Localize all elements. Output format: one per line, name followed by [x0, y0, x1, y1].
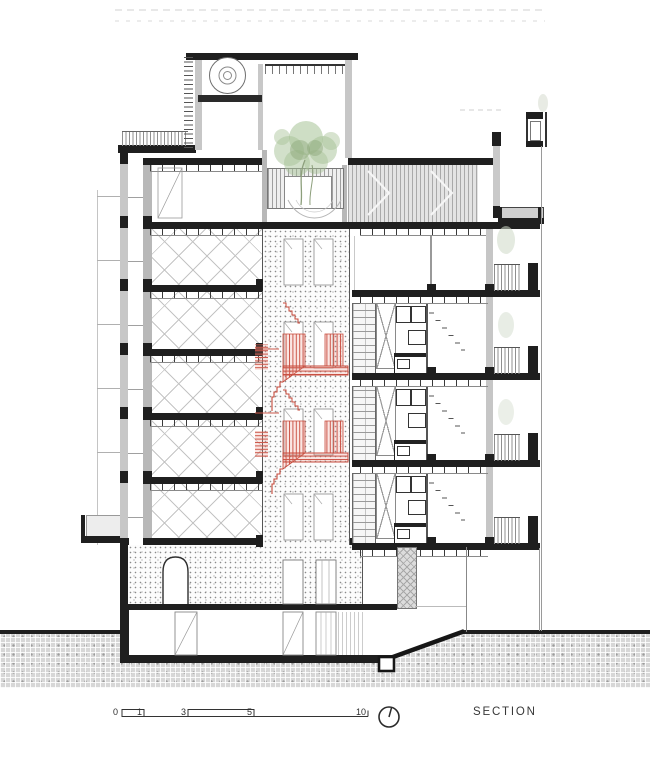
kitchen-wall [426, 386, 428, 460]
ground-floor-slab [128, 604, 397, 610]
column-cut [120, 407, 128, 419]
kitchen-sink [397, 359, 410, 369]
closet [376, 386, 396, 456]
joist-band [360, 229, 488, 236]
room-lattice [152, 420, 262, 477]
planter-box [284, 176, 332, 209]
balcony-plant [498, 399, 514, 425]
party-wall-brick [352, 386, 376, 462]
kitchen-cabinet [411, 476, 426, 493]
entry-canopy [86, 515, 122, 538]
roof-railing [122, 131, 188, 146]
closet [376, 303, 396, 369]
grade-line-left [0, 630, 122, 634]
kitchen-appliance [408, 330, 426, 345]
roof-vent-cap [526, 112, 543, 119]
stair-core-concrete [262, 229, 350, 545]
floor-slab [352, 460, 540, 467]
column-cut [120, 471, 128, 483]
column-cut [120, 279, 128, 291]
kitchen-cabinet [396, 476, 411, 493]
partition-wall [430, 236, 432, 290]
joist-band [150, 165, 262, 172]
footing-line [415, 606, 466, 607]
kitchen-appliance [408, 500, 426, 515]
floor-slab [143, 222, 540, 229]
floor-slab [352, 290, 540, 297]
column-cut [120, 152, 128, 164]
bulkhead-partition [258, 64, 263, 150]
column-cut [120, 343, 128, 355]
joist-band [360, 297, 488, 304]
joist-band [360, 550, 488, 557]
floor-slab [352, 543, 540, 550]
kitchen-cabinet [411, 306, 426, 323]
kitchen-sink [397, 529, 410, 539]
joist-band [150, 420, 262, 427]
joist-band [150, 484, 262, 491]
scale-label-0: 0 [102, 707, 118, 717]
room-door [158, 168, 182, 218]
floor-slab [143, 285, 267, 292]
awning-line [97, 196, 120, 197]
kitchen-cabinet [396, 389, 411, 406]
floor-slab [143, 413, 267, 420]
kitchen-cabinet [411, 389, 426, 406]
awning-line [97, 452, 120, 453]
neighbor-boundary-line [97, 190, 98, 545]
kitchen-appliance [408, 413, 426, 428]
undercroft-edge-line [539, 548, 540, 631]
awning-line [97, 324, 120, 325]
awning-line [97, 260, 120, 261]
column-cut [427, 537, 436, 549]
balcony-jamb [528, 516, 538, 543]
bulkhead-roof-slab [186, 53, 358, 60]
scale-label-3: 3 [170, 707, 186, 717]
gallery-rail [128, 325, 143, 326]
balcony-plant [497, 226, 515, 254]
joist-band [150, 356, 262, 363]
roof-slab-right [348, 158, 498, 165]
foundation-edge-line [466, 547, 467, 632]
joist-band [360, 380, 488, 387]
foundation-pier [397, 547, 417, 609]
scale-label-1: 1 [126, 707, 142, 717]
scale-label-10: 10 [348, 707, 366, 717]
balcony-railing [494, 434, 520, 461]
north-orientation-icon [379, 707, 399, 727]
tank-platform-slab [198, 95, 262, 102]
party-wall-brick [352, 303, 376, 375]
room-lattice [152, 356, 262, 413]
architectural-section-sheet: 0 1 3 5 10 SECTION [0, 0, 650, 784]
ground-floor-concrete [128, 545, 363, 607]
water-tank [210, 58, 246, 94]
gallery-rail [128, 261, 143, 262]
balcony-jamb [528, 433, 538, 460]
column-cut [256, 471, 263, 483]
column-cut [256, 407, 263, 419]
floor-slab [143, 477, 267, 484]
balcony-railing [494, 347, 520, 374]
gallery-rail [128, 517, 143, 518]
facade-edge-line [541, 146, 542, 631]
roof-vent-frame [530, 121, 541, 141]
kitchen-wall [426, 303, 428, 373]
partition-line [354, 236, 355, 290]
kitchen-cabinet [396, 306, 411, 323]
roof-plant [538, 94, 548, 112]
basement-stair-rail [338, 612, 364, 655]
stair-dashed-treads [429, 313, 465, 520]
bulkhead-wall [195, 60, 202, 150]
grade-line-right [461, 630, 650, 634]
balcony-jamb [528, 346, 538, 373]
floor-slab [143, 349, 267, 356]
balcony-railing [494, 264, 520, 291]
closet [376, 473, 396, 539]
balcony-jamb [528, 263, 538, 290]
column-cut [485, 537, 494, 549]
foundation-slab [120, 655, 394, 663]
roof-ladder [184, 57, 193, 148]
column-cut [256, 535, 263, 547]
parapet-cap [492, 132, 501, 146]
scale-label-5: 5 [236, 707, 252, 717]
column-cut [256, 343, 263, 355]
parapet-wall [493, 146, 500, 206]
roof-slab-low [498, 218, 544, 224]
joist-band [360, 467, 488, 474]
room-lattice [152, 484, 262, 538]
kitchen-wall [426, 473, 428, 543]
entry-slab [81, 536, 122, 543]
balcony-railing [494, 517, 520, 544]
joist-band [150, 292, 262, 299]
balcony-plant [498, 312, 514, 338]
awning-line [97, 388, 120, 389]
joist-band [150, 229, 262, 236]
floor-slab [143, 158, 267, 165]
terrace-railing [265, 64, 345, 74]
drawing-title: SECTION [473, 706, 537, 718]
room-lattice [152, 229, 262, 285]
party-wall-brick [352, 473, 376, 545]
rail-cap [498, 207, 502, 218]
sided-room [348, 165, 478, 222]
gallery-rail [128, 197, 143, 198]
column-cut [485, 367, 494, 379]
gallery-rail [128, 389, 143, 390]
column-cut [485, 284, 494, 296]
room-lattice [152, 292, 262, 349]
bulkhead-wall [345, 60, 352, 158]
column-cut [256, 279, 263, 291]
column-cut [485, 454, 494, 466]
gallery-rail [128, 453, 143, 454]
floor-slab [352, 373, 540, 380]
column-cut [427, 454, 436, 466]
column-cut [120, 216, 128, 228]
column-cut [427, 367, 436, 379]
column-cut [427, 284, 436, 296]
kitchen-sink [397, 446, 410, 456]
